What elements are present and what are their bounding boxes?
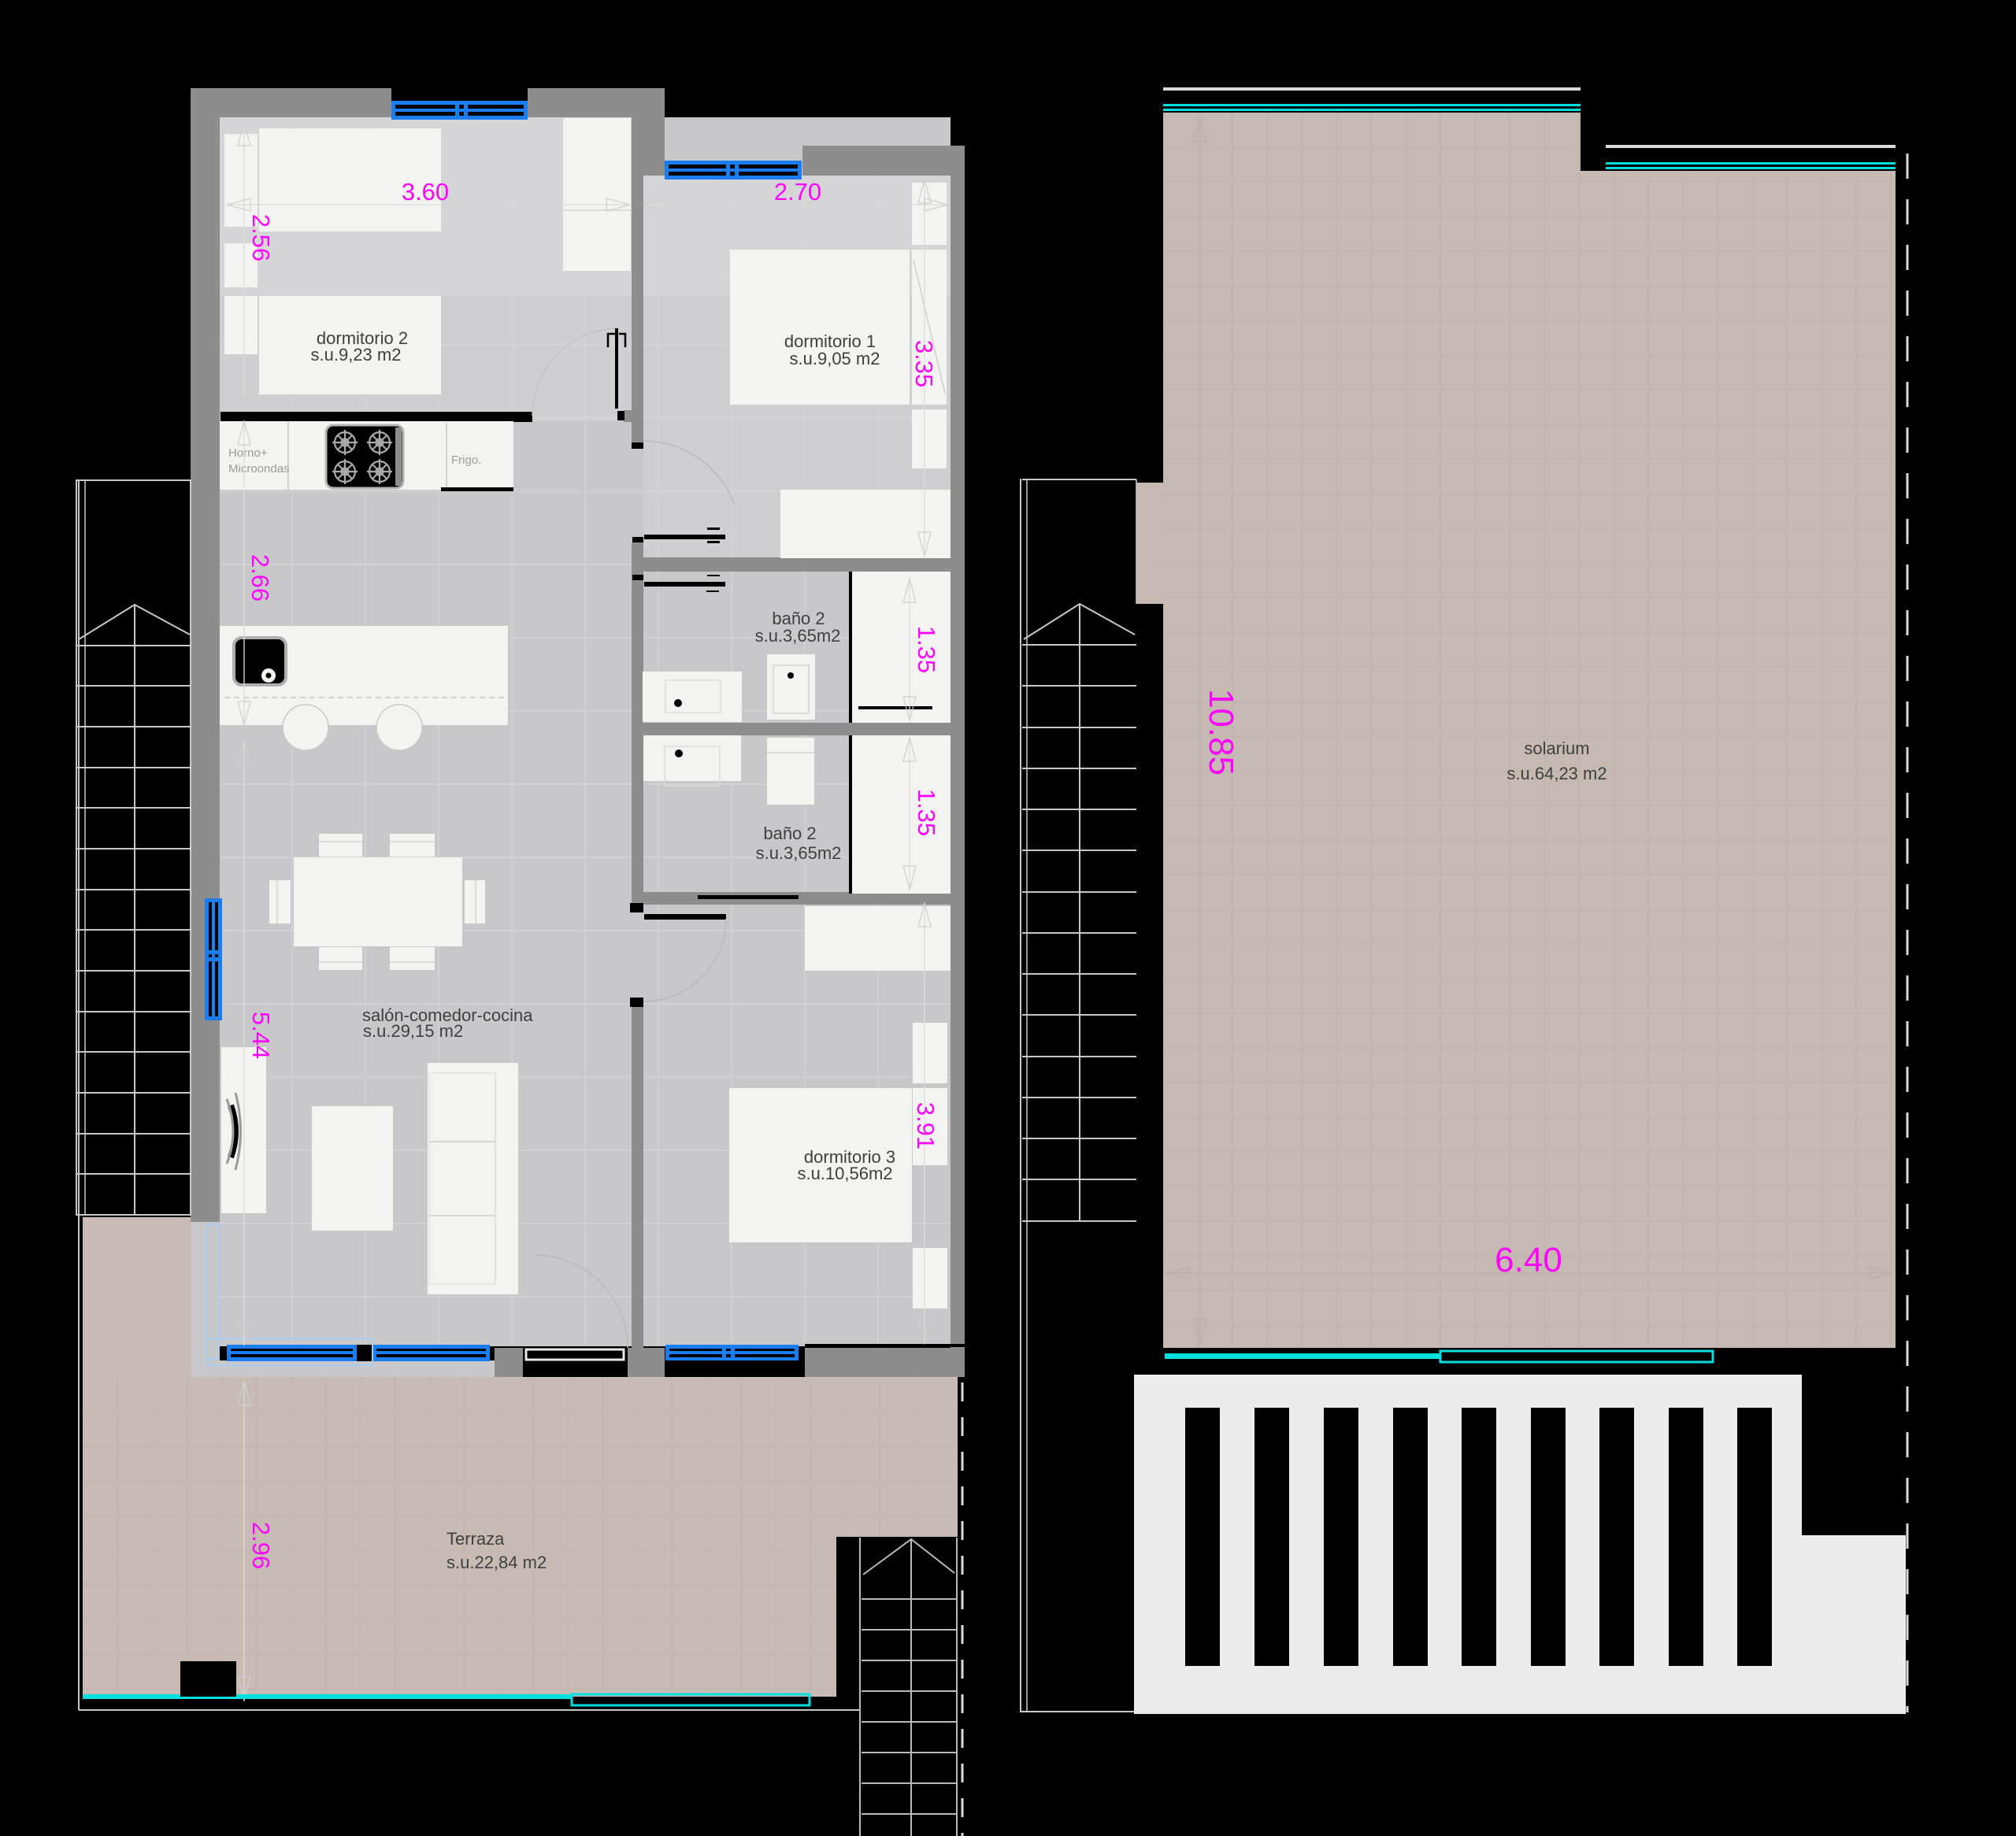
svg-text:Microondas: Microondas xyxy=(228,462,290,476)
svg-text:2.56: 2.56 xyxy=(247,214,275,261)
svg-text:3.35: 3.35 xyxy=(910,340,938,387)
svg-text:Horno+: Horno+ xyxy=(228,446,268,460)
svg-text:s.u.64,23 m2: s.u.64,23 m2 xyxy=(1506,764,1606,783)
svg-text:3.60: 3.60 xyxy=(402,178,449,205)
svg-text:s.u.9,05 m2: s.u.9,05 m2 xyxy=(790,349,880,368)
svg-text:1.35: 1.35 xyxy=(913,626,940,673)
svg-text:Terraza: Terraza xyxy=(447,1529,505,1549)
svg-text:5.44: 5.44 xyxy=(247,1012,275,1059)
svg-text:solarium: solarium xyxy=(1524,738,1589,758)
svg-text:3.91: 3.91 xyxy=(912,1102,939,1149)
svg-text:s.u.3,65m2: s.u.3,65m2 xyxy=(755,626,841,646)
svg-text:6.40: 6.40 xyxy=(1495,1241,1562,1279)
svg-text:1.35: 1.35 xyxy=(913,789,940,836)
svg-text:2.96: 2.96 xyxy=(247,1522,275,1569)
svg-text:s.u.10,56m2: s.u.10,56m2 xyxy=(797,1164,892,1183)
svg-text:s.u.22,84 m2: s.u.22,84 m2 xyxy=(447,1553,547,1572)
svg-text:s.u.3,65m2: s.u.3,65m2 xyxy=(756,843,842,863)
svg-text:s.u.9,23 m2: s.u.9,23 m2 xyxy=(311,345,402,365)
svg-text:2.70: 2.70 xyxy=(774,178,821,205)
svg-text:2.66: 2.66 xyxy=(246,554,274,602)
svg-text:Frigo.: Frigo. xyxy=(451,453,481,467)
svg-text:10.85: 10.85 xyxy=(1202,689,1240,775)
svg-text:s.u.29,15 m2: s.u.29,15 m2 xyxy=(363,1021,463,1041)
svg-text:baño 2: baño 2 xyxy=(763,824,816,843)
